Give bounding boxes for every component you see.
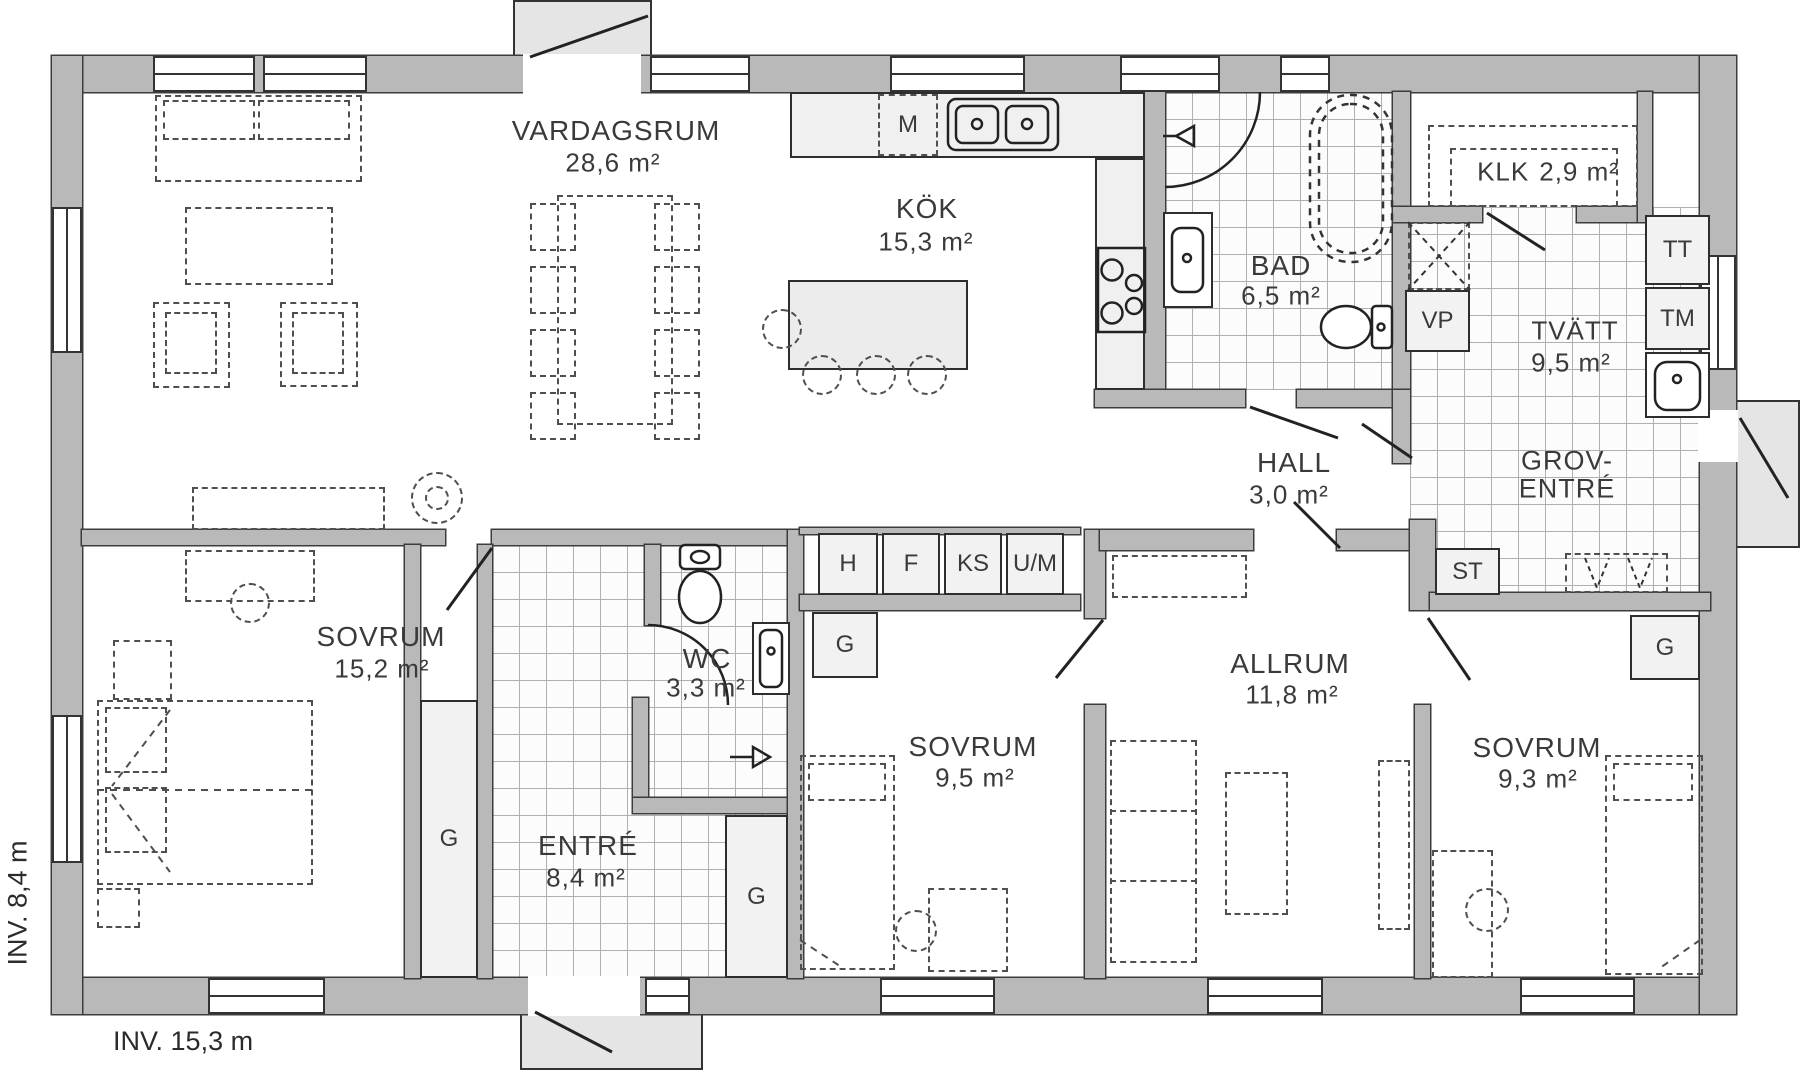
desk bbox=[928, 888, 1008, 972]
bookshelf-shelf bbox=[1110, 880, 1197, 882]
interior-wall bbox=[492, 530, 800, 545]
dishwasher-m: M bbox=[878, 94, 938, 156]
dimension-interior-width: INV. 15,3 m bbox=[113, 1026, 253, 1057]
dining-chair bbox=[530, 329, 576, 377]
room-label-allrum: ALLRUM bbox=[1230, 648, 1350, 680]
armchair-cushion bbox=[292, 312, 344, 374]
room-area-sovrum-oster: 9,3 m² bbox=[1498, 764, 1578, 795]
exterior-wall-left bbox=[52, 56, 82, 1014]
room-label-sovrum-oster: SOVRUM bbox=[1473, 732, 1602, 764]
window bbox=[1520, 978, 1635, 1014]
room-label-bad: BAD bbox=[1251, 250, 1312, 282]
wardrobe-g: G bbox=[420, 700, 478, 978]
washer-tm: TM bbox=[1645, 287, 1710, 350]
interior-wall bbox=[800, 595, 1080, 610]
window bbox=[1207, 978, 1323, 1014]
sideboard bbox=[192, 487, 385, 530]
sofa-cushion bbox=[258, 100, 350, 140]
pillow bbox=[105, 787, 167, 853]
sofa-cushion bbox=[163, 100, 255, 140]
room-area-sovrum-vanster: 15,2 m² bbox=[334, 654, 429, 685]
cleaning-closet-st: ST bbox=[1435, 548, 1500, 595]
wardrobe-g: G bbox=[812, 612, 878, 678]
interior-wall bbox=[645, 545, 660, 625]
groventre-line1: GROV- bbox=[1521, 447, 1613, 475]
pillow bbox=[105, 707, 167, 773]
window bbox=[645, 978, 690, 1014]
room-area-tvatt: 9,5 m² bbox=[1531, 348, 1611, 379]
klk-name: KLK bbox=[1477, 157, 1529, 188]
room-area-entre: 8,4 m² bbox=[546, 863, 626, 894]
interior-wall bbox=[633, 798, 790, 813]
dining-chair bbox=[654, 266, 700, 314]
wall-shelf bbox=[1378, 760, 1410, 930]
terrace-door-opening bbox=[523, 54, 641, 94]
dining-chair bbox=[530, 392, 576, 440]
window bbox=[52, 715, 82, 863]
sideboard bbox=[1112, 555, 1247, 598]
room-label-kok: KÖK bbox=[896, 193, 958, 225]
exterior-wall-right bbox=[1700, 56, 1736, 1014]
pillow bbox=[808, 763, 886, 801]
interior-wall bbox=[633, 698, 648, 813]
interior-wall bbox=[1145, 92, 1165, 390]
dishwasher-m-label: M bbox=[898, 111, 918, 139]
groventre-line2: ENTRÉ bbox=[1519, 475, 1616, 503]
room-label-sovrum-mitt: SOVRUM bbox=[909, 731, 1038, 763]
room-area-kok: 15,3 m² bbox=[878, 227, 973, 258]
bench bbox=[1565, 553, 1668, 593]
nightstand bbox=[113, 640, 172, 700]
plant-inner bbox=[425, 486, 449, 510]
interior-wall bbox=[1100, 530, 1253, 550]
kitchen-counter-side bbox=[1095, 158, 1145, 390]
dining-chair bbox=[530, 203, 576, 251]
bar-stool bbox=[762, 309, 802, 349]
window bbox=[52, 207, 82, 353]
room-area-vardagsrum: 28,6 m² bbox=[565, 148, 660, 179]
shower-square bbox=[1408, 222, 1470, 290]
room-label-tvatt: TVÄTT bbox=[1531, 316, 1618, 347]
interior-wall bbox=[82, 530, 445, 545]
heat-pump-vp: VP bbox=[1405, 290, 1470, 352]
nightstand bbox=[97, 888, 140, 928]
window bbox=[1120, 56, 1220, 92]
dining-chair bbox=[530, 266, 576, 314]
wc-sink-cabinet bbox=[752, 622, 790, 695]
room-label-vardagsrum: VARDAGSRUM bbox=[512, 115, 721, 147]
window bbox=[263, 56, 367, 92]
bar-stool bbox=[856, 355, 896, 395]
laundry-sink-unit bbox=[1645, 352, 1710, 418]
room-label-klk: KLK 2,9 m² bbox=[1477, 157, 1619, 188]
interior-wall bbox=[1337, 530, 1410, 550]
interior-wall bbox=[1085, 705, 1105, 978]
coffee-table bbox=[185, 207, 333, 285]
oven-micro-um: U/M bbox=[1006, 533, 1064, 595]
entry-door-opening bbox=[528, 976, 640, 1016]
window bbox=[880, 978, 995, 1014]
window bbox=[1280, 56, 1330, 92]
interior-wall bbox=[1430, 593, 1710, 610]
interior-wall bbox=[1577, 207, 1640, 222]
dryer-tt: TT bbox=[1645, 215, 1710, 285]
interior-wall bbox=[405, 545, 420, 978]
dining-chair bbox=[654, 329, 700, 377]
terrace-porch-top bbox=[513, 0, 652, 57]
window bbox=[208, 978, 325, 1014]
room-area-sovrum-mitt: 9,5 m² bbox=[935, 763, 1015, 794]
interior-wall bbox=[1095, 390, 1245, 407]
bad-sink-cabinet bbox=[1163, 212, 1213, 308]
cabinet-h: H bbox=[818, 533, 878, 595]
desk-chair bbox=[230, 583, 270, 623]
bookshelf-shelf bbox=[1110, 810, 1197, 812]
fridge-ks: KS bbox=[944, 533, 1002, 595]
wardrobe-g: G bbox=[1630, 615, 1700, 680]
side-porch-right bbox=[1735, 400, 1800, 548]
bookshelf bbox=[1110, 740, 1197, 963]
interior-wall bbox=[1393, 207, 1482, 222]
interior-wall bbox=[1393, 390, 1410, 463]
dining-chair bbox=[654, 203, 700, 251]
dimension-interior-height: INV. 8,4 m bbox=[3, 840, 34, 965]
interior-wall bbox=[1415, 705, 1430, 978]
desk-chair bbox=[1465, 888, 1509, 932]
room-area-hall: 3,0 m² bbox=[1249, 480, 1329, 511]
room-area-bad: 6,5 m² bbox=[1241, 281, 1321, 312]
window bbox=[650, 56, 750, 92]
room-label-wc: WC bbox=[683, 643, 732, 675]
room-label-entre: ENTRÉ bbox=[538, 830, 638, 862]
desk-chair bbox=[895, 910, 937, 952]
entry-porch-bottom bbox=[520, 1013, 703, 1070]
window bbox=[153, 56, 255, 92]
klk-area: 2,9 m² bbox=[1539, 157, 1619, 188]
interior-wall bbox=[478, 545, 492, 978]
room-area-allrum: 11,8 m² bbox=[1245, 680, 1338, 711]
kitchen-counter-top bbox=[790, 92, 1145, 158]
freezer-f: F bbox=[882, 533, 940, 595]
room-area-wc: 3,3 m² bbox=[666, 673, 746, 704]
room-label-sovrum-vanster: SOVRUM bbox=[317, 621, 446, 653]
bar-stool bbox=[802, 355, 842, 395]
interior-wall bbox=[1638, 92, 1652, 222]
tv-bench bbox=[1225, 772, 1288, 915]
window bbox=[890, 56, 1025, 92]
room-label-hall: HALL bbox=[1257, 447, 1331, 479]
bar-stool bbox=[907, 355, 947, 395]
armchair-cushion bbox=[165, 312, 217, 374]
dining-chair bbox=[654, 392, 700, 440]
room-label-groventre: GROV- ENTRÉ bbox=[1519, 447, 1616, 504]
wardrobe-g: G bbox=[725, 815, 788, 978]
pillow bbox=[1613, 763, 1693, 801]
floor-plan: G G G G ST VP H F KS U/M TT TM M bbox=[0, 0, 1800, 1070]
